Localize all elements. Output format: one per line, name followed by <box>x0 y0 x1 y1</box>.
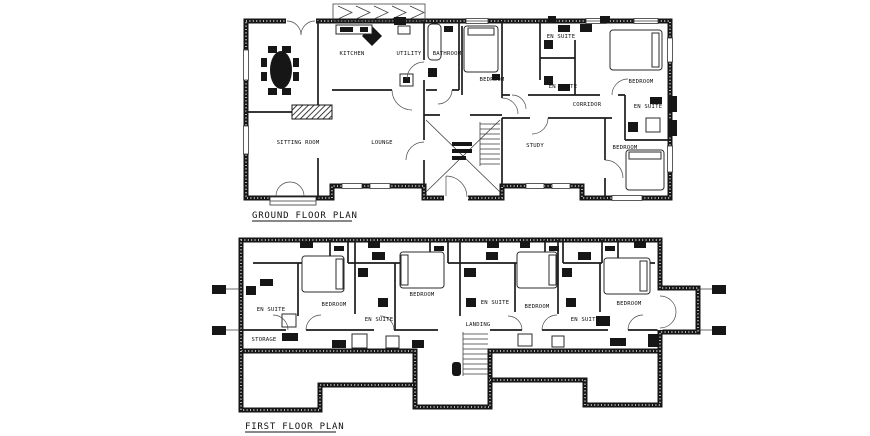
room-label-ensuite: EN SUITE <box>634 104 663 110</box>
room-label-bedroom: BEDROOM <box>322 302 347 308</box>
room-label-bedroom: BEDROOM <box>525 304 550 310</box>
bed-icon <box>464 26 500 80</box>
room-label-ensuite: EN SUITE <box>481 300 510 306</box>
room-label-sitting-room: SITTING ROOM <box>277 140 320 146</box>
room-label-study: STUDY <box>526 143 544 149</box>
room-label-bathroom: BATHROOM <box>433 51 462 57</box>
ground-floor-plan: KITCHEN UTILITY BATHROOM BEDROOM EN SUIT… <box>244 4 678 221</box>
room-label-ensuite: EN SUITE <box>571 317 600 323</box>
room-label-ensuite: EN SUITE <box>547 34 576 40</box>
room-label-bedroom: BEDROOM <box>410 292 435 298</box>
dining-table-icon <box>261 46 299 95</box>
kitchen-counter-icon <box>336 25 372 34</box>
staircase-icon <box>452 332 488 376</box>
room-label-corridor: CORRIDOR <box>573 102 602 108</box>
room-label-bedroom: BEDROOM <box>629 79 654 85</box>
room-label-lounge: LOUNGE <box>371 140 393 146</box>
room-label-utility: UTILITY <box>397 51 422 57</box>
room-label-ensuite: EN SUITE <box>257 307 286 313</box>
room-label-ensuite: EN SUITE <box>365 317 394 323</box>
bed-icon <box>517 252 557 288</box>
floor-plan-drawing: KITCHEN UTILITY BATHROOM BEDROOM EN SUIT… <box>0 0 870 436</box>
bed-icon <box>400 252 444 288</box>
first-floor-title: FIRST FLOOR PLAN <box>245 422 345 432</box>
fireplace-hatch <box>292 105 332 119</box>
room-label-bedroom: BEDROOM <box>613 145 638 151</box>
first-wall-fittings <box>300 242 646 251</box>
room-label-bedroom: BEDROOM <box>480 77 505 83</box>
room-label-kitchen: KITCHEN <box>340 51 365 57</box>
first-floor-plan: EN SUITE BEDROOM EN SUITE BEDROOM EN SUI… <box>212 240 726 432</box>
room-label-storage: STORAGE <box>252 337 277 343</box>
balcony-doors <box>658 294 677 330</box>
bed-icon <box>596 258 650 326</box>
bed-icon <box>580 24 662 70</box>
room-label-bedroom: BEDROOM <box>617 301 642 307</box>
first-room-labels: EN SUITE BEDROOM EN SUITE BEDROOM EN SUI… <box>252 292 642 343</box>
ground-floor-title: GROUND FLOOR PLAN <box>252 211 358 221</box>
staircase-icon <box>426 120 500 192</box>
room-label-ensuite: EN SUITE <box>549 84 578 90</box>
floor-plan-sheet: KITCHEN UTILITY BATHROOM BEDROOM EN SUIT… <box>0 0 870 436</box>
bed-icon <box>302 256 344 292</box>
corridor-fittings <box>282 333 658 348</box>
bed-icon <box>626 150 664 190</box>
room-label-landing: LANDING <box>466 322 491 328</box>
